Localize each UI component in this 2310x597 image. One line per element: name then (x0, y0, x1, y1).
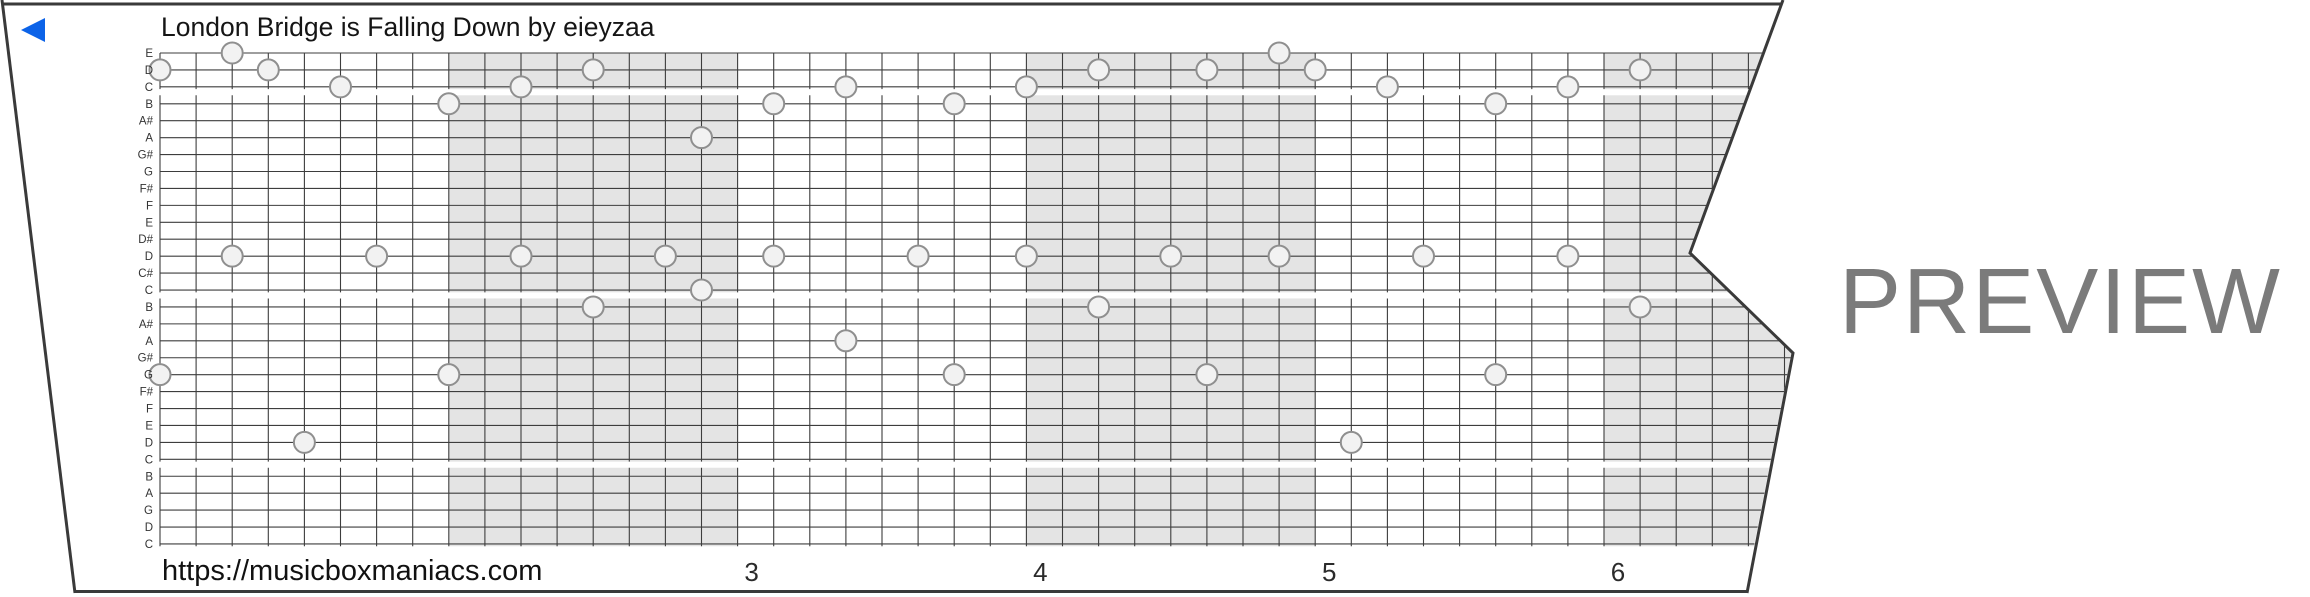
note (763, 246, 784, 267)
row-label: C (145, 285, 153, 297)
note (330, 76, 351, 97)
note (763, 93, 784, 114)
note (1196, 364, 1217, 385)
row-label: D (145, 251, 153, 263)
note (583, 296, 604, 317)
note (438, 364, 459, 385)
row-label: A (145, 336, 153, 348)
note (366, 246, 387, 267)
measure-numbers: 3456 (744, 557, 1625, 587)
note (1088, 59, 1109, 80)
row-label: B (145, 471, 153, 483)
note (222, 43, 243, 64)
row-label: B (145, 99, 153, 111)
row-label: A# (139, 116, 154, 128)
measure-number: 4 (1033, 557, 1047, 587)
row-label: A (145, 133, 153, 145)
measure-number: 6 (1611, 557, 1625, 587)
note (1305, 59, 1326, 80)
note (1341, 432, 1362, 453)
note (655, 246, 676, 267)
note (1485, 364, 1506, 385)
note (691, 127, 712, 148)
row-label: G (144, 505, 153, 517)
row-label: C (145, 82, 153, 94)
row-label: D# (138, 234, 153, 246)
note (944, 93, 965, 114)
row-label: F (146, 200, 153, 212)
row-label: F (146, 404, 153, 416)
strip-left-cut-edge (2, 0, 75, 593)
row-label: B (145, 302, 153, 314)
note (1088, 296, 1109, 317)
note (1557, 246, 1578, 267)
strip-title: London Bridge is Falling Down by eieyzaa (161, 12, 655, 42)
row-labels: EDCBA#AG#GF#FED#DC#CBA#AG#GF#FEDCBAGDC (138, 48, 154, 551)
row-label: C (145, 539, 153, 551)
gridlines-layer (160, 53, 1805, 546)
note (835, 76, 856, 97)
note (294, 432, 315, 453)
row-label: C# (138, 268, 153, 280)
music-strip: EDCBA#AG#GF#FED#DC#CBA#AG#GF#FEDCBAGDC 3… (0, 0, 2310, 597)
note (908, 246, 929, 267)
row-label: C (145, 454, 153, 466)
note (1269, 246, 1290, 267)
note (1485, 93, 1506, 114)
measure-number: 5 (1322, 557, 1336, 587)
row-label: G# (138, 150, 154, 162)
note (438, 93, 459, 114)
row-label: F# (140, 183, 154, 195)
note (1160, 246, 1181, 267)
note (1196, 59, 1217, 80)
measure-number: 3 (744, 557, 758, 587)
row-label: G (144, 370, 153, 382)
row-label: F# (140, 387, 154, 399)
row-label: D (145, 522, 153, 534)
note (944, 364, 965, 385)
note (258, 59, 279, 80)
row-label: E (145, 420, 153, 432)
row-label: D (145, 65, 153, 77)
row-label: D (145, 437, 153, 449)
note (583, 59, 604, 80)
note (1016, 76, 1037, 97)
note (511, 76, 532, 97)
site-url: https://musicboxmaniacs.com (162, 555, 542, 587)
note (1377, 76, 1398, 97)
strip-start-arrow-icon (21, 18, 45, 42)
row-label: E (145, 48, 153, 60)
note (1016, 246, 1037, 267)
note (1630, 296, 1651, 317)
row-label: A# (139, 319, 154, 331)
note (511, 246, 532, 267)
row-label: G (144, 167, 153, 179)
music-strip-preview-page: EDCBA#AG#GF#FED#DC#CBA#AG#GF#FEDCBAGDC 3… (0, 0, 2310, 597)
row-label: A (145, 488, 153, 500)
note (1557, 76, 1578, 97)
note (1269, 43, 1290, 64)
note (222, 246, 243, 267)
note (1630, 59, 1651, 80)
preview-watermark: PREVIEW (1839, 249, 2282, 353)
note (1413, 246, 1434, 267)
note (835, 330, 856, 351)
note (691, 280, 712, 301)
row-label: E (145, 217, 153, 229)
row-label: G# (138, 353, 154, 365)
